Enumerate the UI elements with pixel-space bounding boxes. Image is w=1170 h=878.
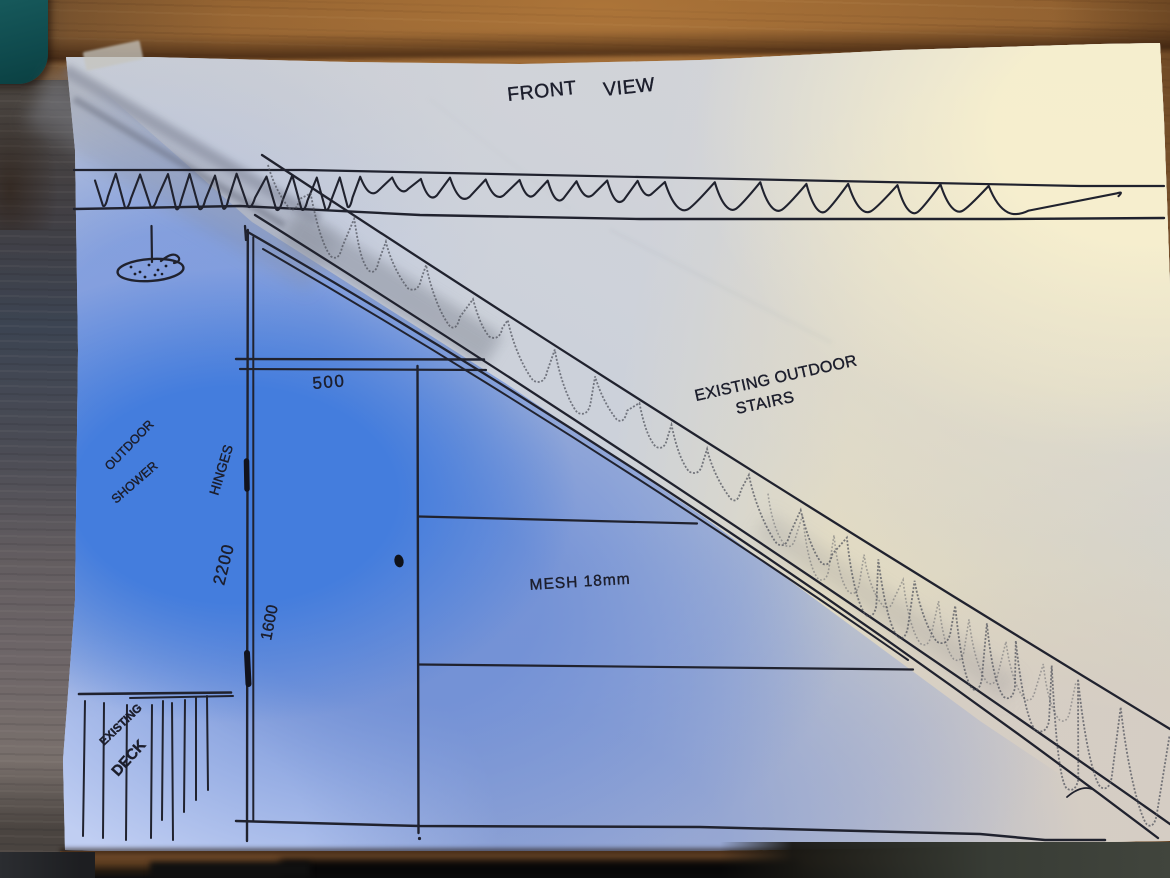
svg-text:FRONT: FRONT [506, 77, 578, 106]
svg-text:2200: 2200 [209, 542, 238, 587]
svg-text:500: 500 [312, 371, 346, 393]
svg-text:VIEW: VIEW [602, 74, 656, 101]
svg-text:DECK: DECK [108, 737, 149, 780]
svg-text:HINGES: HINGES [207, 443, 236, 497]
svg-text:1600: 1600 [258, 603, 281, 641]
svg-text:MESH 18mm: MESH 18mm [529, 571, 631, 594]
